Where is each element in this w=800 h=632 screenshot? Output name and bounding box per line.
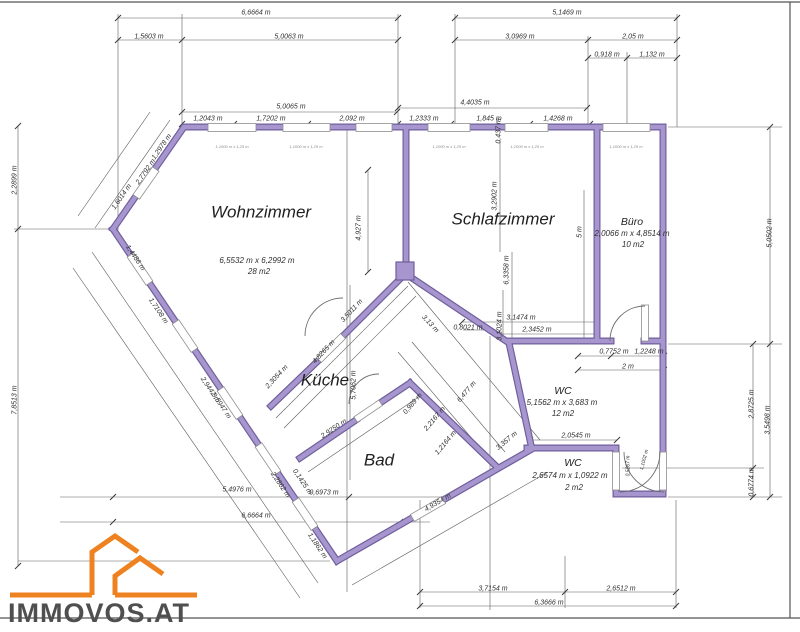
window bbox=[255, 443, 281, 476]
logo-house-icon bbox=[10, 536, 197, 595]
window bbox=[217, 387, 243, 420]
door-leaf bbox=[660, 452, 667, 490]
window bbox=[410, 497, 445, 522]
door-leaf bbox=[642, 305, 649, 341]
wall-column bbox=[396, 262, 414, 280]
window bbox=[172, 320, 198, 353]
floorplan-page: 6,6664 m1,5603 m5,0063 m5,1469 m3,0969 m… bbox=[0, 0, 800, 632]
window bbox=[603, 124, 650, 132]
window bbox=[356, 124, 392, 132]
door-leaf bbox=[613, 452, 620, 490]
floorplan-drawing bbox=[0, 0, 800, 632]
dimension-lines bbox=[14, 14, 782, 610]
windows bbox=[127, 124, 666, 531]
door-leaf bbox=[317, 334, 346, 363]
window bbox=[133, 167, 159, 199]
window bbox=[292, 498, 318, 531]
window bbox=[127, 253, 153, 286]
window bbox=[428, 124, 470, 132]
dimension-ticks bbox=[15, 15, 773, 609]
window bbox=[283, 124, 330, 132]
door-arc bbox=[624, 452, 664, 492]
door-arc bbox=[305, 298, 343, 336]
window bbox=[505, 124, 548, 132]
door-arc bbox=[349, 374, 379, 404]
door-arc bbox=[610, 306, 645, 341]
brand-logo-text: IMMOVOS.AT bbox=[8, 598, 190, 629]
door-arc bbox=[620, 452, 660, 492]
door-leaf bbox=[354, 400, 383, 422]
window bbox=[208, 124, 256, 132]
